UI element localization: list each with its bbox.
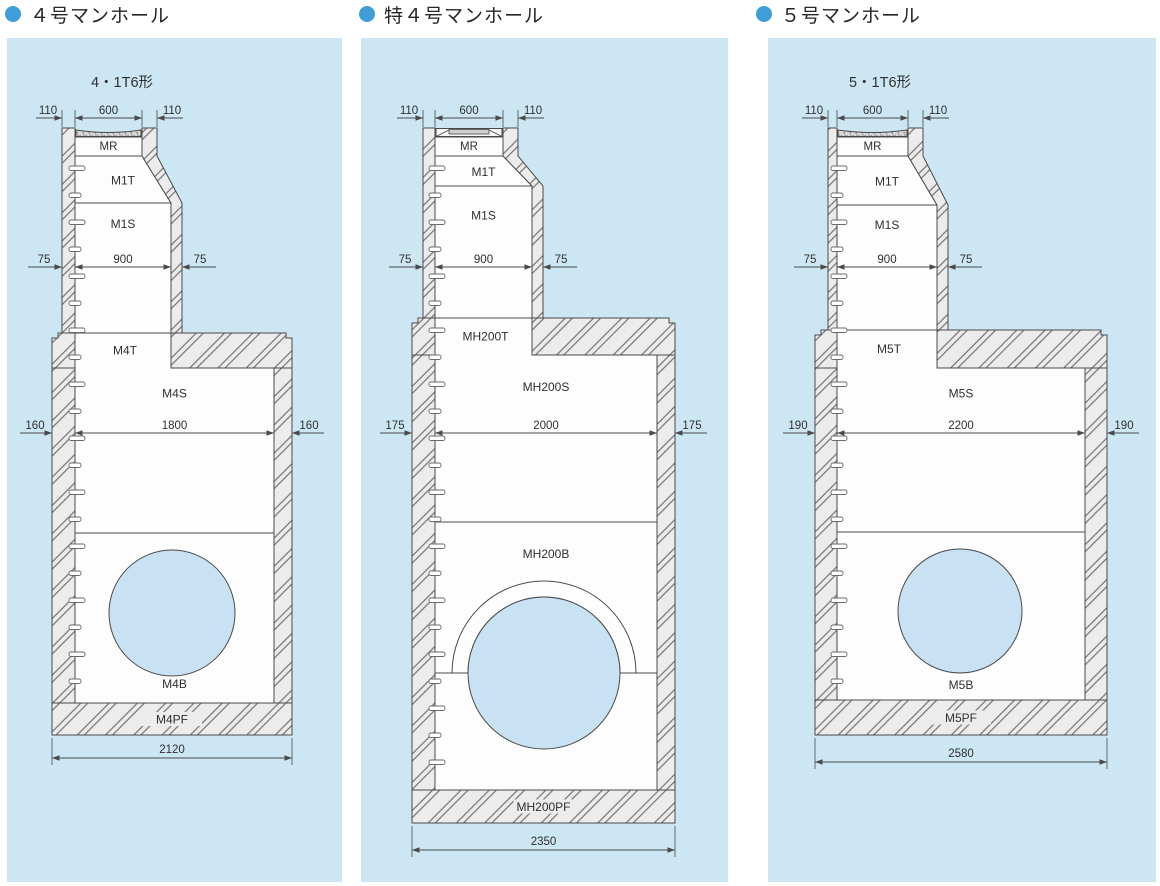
rung: [429, 760, 445, 765]
dim-overall: 2580: [948, 748, 974, 760]
label-chamber-bottom: M4B: [162, 677, 187, 691]
dim-chamber-right: 160: [299, 420, 318, 432]
rung: [69, 355, 81, 360]
dim-chamber-center: 2000: [533, 420, 559, 432]
panel-title-label: 特４号マンホール: [384, 1, 544, 28]
dim-shaft-center: 900: [877, 254, 896, 266]
label-taper: M1T: [875, 175, 900, 189]
dim-top-right: 110: [524, 105, 542, 117]
rung: [69, 517, 81, 522]
rung: [429, 598, 445, 603]
model-label: 4・1T6形: [91, 74, 154, 91]
shaft-wall-left: [828, 128, 837, 330]
label-footing: MH200PF: [516, 800, 570, 814]
rung: [69, 301, 81, 306]
bullet-icon: [756, 6, 772, 22]
label-chamber-top: M5T: [877, 342, 902, 356]
manhole-cross-section-svg: 110600110759007517520001752350MRM1TM1SMH…: [361, 38, 728, 882]
rung: [831, 544, 847, 549]
rung: [69, 679, 81, 684]
rung: [831, 679, 843, 684]
label-shaft: M1S: [875, 218, 900, 232]
chamber-top-slab-left: [412, 318, 435, 355]
dim-top-center: 600: [863, 105, 882, 117]
rung: [69, 598, 85, 603]
label-chamber-bottom: M5B: [949, 678, 974, 692]
rung: [429, 193, 441, 198]
chamber-wall-right: [1085, 368, 1107, 700]
rung: [429, 355, 441, 360]
dim-shaft-center: 900: [474, 254, 493, 266]
catalog-page: ４号マンホール1106001107590075160180016021204・1…: [0, 0, 1160, 886]
rung: [831, 301, 843, 306]
rung: [69, 652, 85, 657]
dim-shaft-left: 75: [804, 254, 817, 266]
rung: [69, 436, 85, 441]
pipe-circle: [898, 549, 1022, 673]
dim-chamber-center: 2200: [948, 420, 974, 432]
dim-shaft-left: 75: [38, 254, 51, 266]
label-chamber-mid: M4S: [162, 387, 187, 401]
chamber-wall-right: [274, 368, 292, 703]
panel-2-title: 特４号マンホール: [359, 2, 544, 26]
rung: [831, 247, 843, 252]
rung: [429, 409, 441, 414]
dim-chamber-left: 175: [385, 420, 404, 432]
chamber-top-slab-right: [532, 318, 675, 355]
chamber-wall-right: [657, 355, 675, 790]
dim-top-center: 600: [459, 105, 478, 117]
rung: [429, 733, 441, 738]
label-chamber-top: MH200T: [462, 330, 509, 344]
dim-chamber-left: 190: [788, 420, 807, 432]
rung: [429, 490, 445, 495]
dim-shaft-right: 75: [960, 254, 973, 266]
dim-top-right: 110: [929, 105, 947, 117]
rung: [69, 463, 81, 468]
rung: [429, 706, 445, 711]
rung: [429, 382, 445, 387]
rung: [429, 679, 441, 684]
dim-top-right: 110: [163, 105, 181, 117]
rung: [69, 247, 81, 252]
chamber-top-slab-right: [171, 333, 292, 368]
panel-1-title: ４号マンホール: [5, 2, 170, 26]
rung: [429, 544, 445, 549]
label-shaft: M1S: [471, 209, 496, 223]
rung: [429, 517, 441, 522]
label-chamber-bottom: MH200B: [523, 547, 570, 561]
panel-3-diagram: 1106001107590075190220019025805・1T6形MRM1…: [768, 38, 1156, 886]
rung: [69, 625, 81, 630]
rung: [429, 301, 441, 306]
rung: [429, 247, 441, 252]
rung: [429, 625, 441, 630]
rung: [831, 166, 847, 171]
rung: [429, 571, 441, 576]
chamber-top-slab-right: [937, 330, 1107, 368]
rung: [831, 652, 847, 657]
panel-3-title: ５号マンホール: [756, 2, 921, 26]
pipe-circle: [109, 550, 235, 676]
rung: [69, 571, 81, 576]
label-ring: MR: [864, 141, 882, 153]
rung: [69, 328, 85, 333]
label-shaft: M1S: [111, 217, 136, 231]
dim-shaft-right: 75: [194, 254, 207, 266]
label-ring: MR: [460, 141, 478, 153]
dim-top-center: 600: [99, 105, 118, 117]
pipe-circle: [468, 597, 620, 749]
model-label: 5・1T6形: [849, 74, 912, 91]
rung: [69, 490, 85, 495]
rung: [69, 274, 85, 279]
pipe-opening: [109, 550, 235, 676]
rung: [831, 517, 843, 522]
dim-top-left: 110: [805, 105, 823, 117]
dim-chamber-center: 1800: [162, 420, 188, 432]
label-chamber-top: M4T: [113, 344, 138, 358]
dim-top-left: 110: [39, 105, 57, 117]
bullet-icon: [5, 6, 21, 22]
rung: [831, 220, 847, 225]
rung: [831, 355, 843, 360]
rung: [69, 409, 81, 414]
label-ring: MR: [100, 141, 118, 153]
dim-overall: 2350: [531, 836, 557, 848]
rung: [831, 409, 843, 414]
label-footing: M4PF: [156, 713, 188, 727]
dim-shaft-left: 75: [399, 254, 412, 266]
rung: [831, 490, 847, 495]
dim-overall: 2120: [159, 744, 185, 756]
rung: [831, 571, 843, 576]
rung: [831, 625, 843, 630]
rung: [831, 436, 847, 441]
label-chamber-mid: M5S: [949, 387, 974, 401]
panel-title-label: ４号マンホール: [30, 1, 170, 28]
rung: [69, 382, 85, 387]
rung: [69, 193, 81, 198]
dim-top-left: 110: [400, 105, 418, 117]
manhole-cover: [436, 129, 502, 137]
cover-recess: [449, 130, 489, 135]
rung: [831, 328, 847, 333]
dim-chamber-right: 190: [1114, 420, 1133, 432]
rung: [69, 544, 85, 549]
rung: [69, 166, 85, 171]
rung: [429, 274, 445, 279]
dim-chamber-right: 175: [682, 420, 701, 432]
dim-shaft-right: 75: [555, 254, 568, 266]
rung: [831, 193, 843, 198]
chamber-top-slab-left: [52, 333, 75, 368]
rung: [69, 220, 85, 225]
rung: [831, 598, 847, 603]
panel-1-diagram: 1106001107590075160180016021204・1T6形MRM1…: [7, 38, 342, 886]
label-footing: M5PF: [945, 711, 977, 725]
rung: [831, 463, 843, 468]
chamber-wall-left: [815, 368, 837, 700]
rung: [831, 274, 847, 279]
rung: [831, 382, 847, 387]
rung: [429, 220, 445, 225]
bullet-icon: [359, 6, 375, 22]
label-taper: M1T: [472, 165, 497, 179]
rung: [429, 436, 445, 441]
panel-2-diagram: 110600110759007517520001752350MRM1TM1SMH…: [361, 38, 728, 886]
panel-title-label: ５号マンホール: [781, 1, 921, 28]
manhole-cross-section-svg: 1106001107590075190220019025805・1T6形MRM1…: [768, 38, 1156, 882]
rung: [429, 328, 445, 333]
dim-shaft-center: 900: [113, 254, 132, 266]
label-chamber-mid: MH200S: [523, 380, 570, 394]
rung: [429, 652, 445, 657]
chamber-top-slab-left: [815, 330, 837, 368]
dim-chamber-left: 160: [25, 420, 44, 432]
rung: [429, 166, 445, 171]
label-taper: M1T: [111, 174, 136, 188]
rung: [429, 463, 441, 468]
pipe-opening: [898, 549, 1022, 673]
manhole-cross-section-svg: 1106001107590075160180016021204・1T6形MRM1…: [7, 38, 342, 882]
